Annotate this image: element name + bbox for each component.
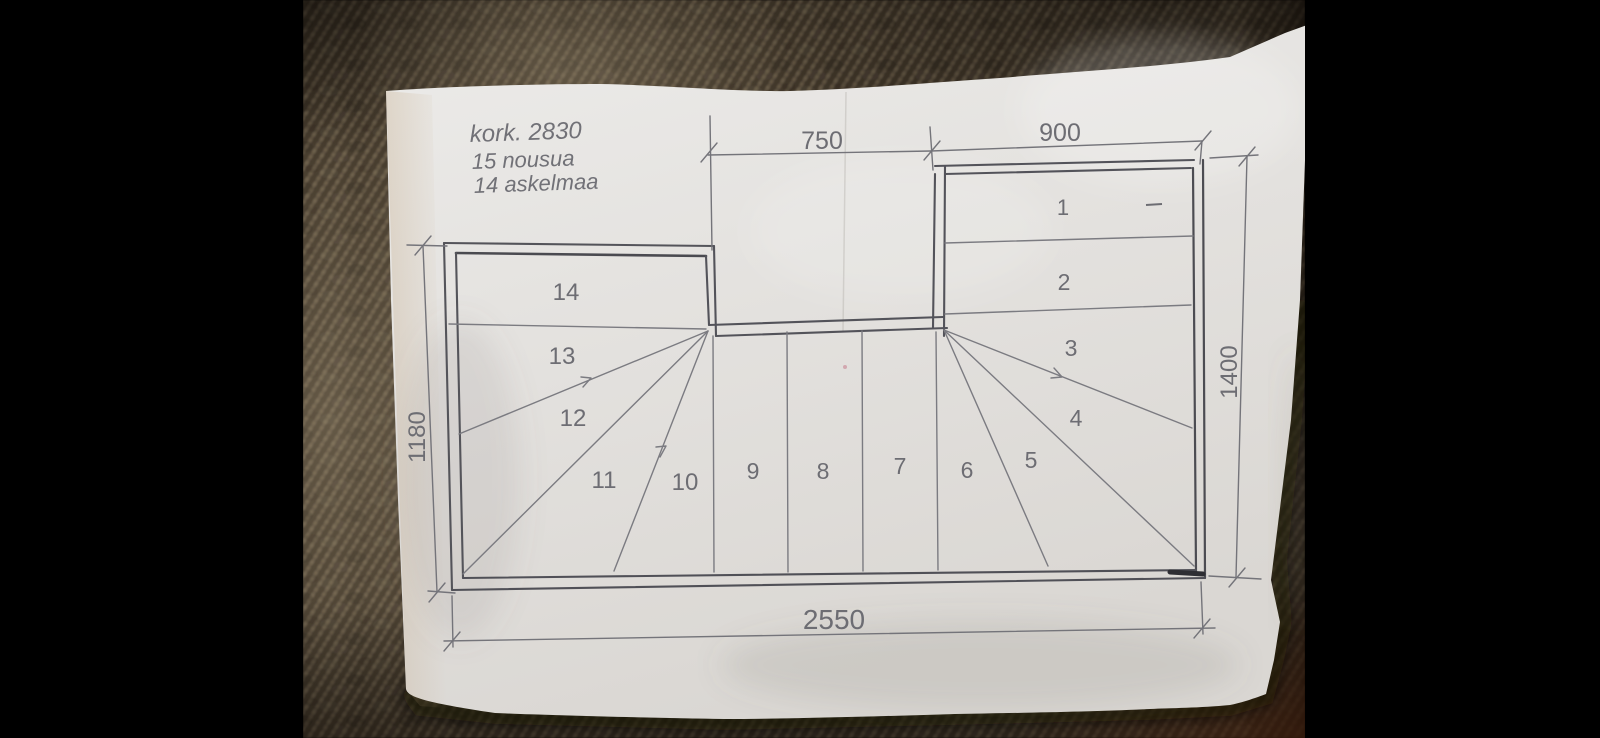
svg-text:6: 6 bbox=[961, 457, 974, 483]
svg-text:5: 5 bbox=[1025, 447, 1038, 473]
svg-text:750: 750 bbox=[801, 127, 843, 155]
svg-text:13: 13 bbox=[549, 343, 576, 370]
svg-text:12: 12 bbox=[560, 405, 587, 432]
svg-text:8: 8 bbox=[817, 458, 830, 484]
svg-text:4: 4 bbox=[1070, 405, 1083, 431]
svg-text:3: 3 bbox=[1065, 335, 1078, 361]
svg-text:10: 10 bbox=[672, 469, 699, 496]
svg-text:7: 7 bbox=[894, 453, 907, 479]
svg-text:14 askelmaa: 14 askelmaa bbox=[473, 169, 599, 198]
svg-text:1180: 1180 bbox=[404, 411, 431, 463]
svg-text:kork. 2830: kork. 2830 bbox=[469, 117, 583, 148]
svg-text:1: 1 bbox=[1057, 195, 1069, 220]
svg-text:2: 2 bbox=[1058, 269, 1071, 295]
svg-text:900: 900 bbox=[1039, 119, 1081, 147]
svg-text:2550: 2550 bbox=[803, 604, 865, 635]
svg-text:14: 14 bbox=[553, 279, 580, 306]
svg-text:11: 11 bbox=[592, 467, 617, 494]
svg-text:1400: 1400 bbox=[1216, 345, 1243, 398]
svg-text:9: 9 bbox=[747, 458, 760, 484]
